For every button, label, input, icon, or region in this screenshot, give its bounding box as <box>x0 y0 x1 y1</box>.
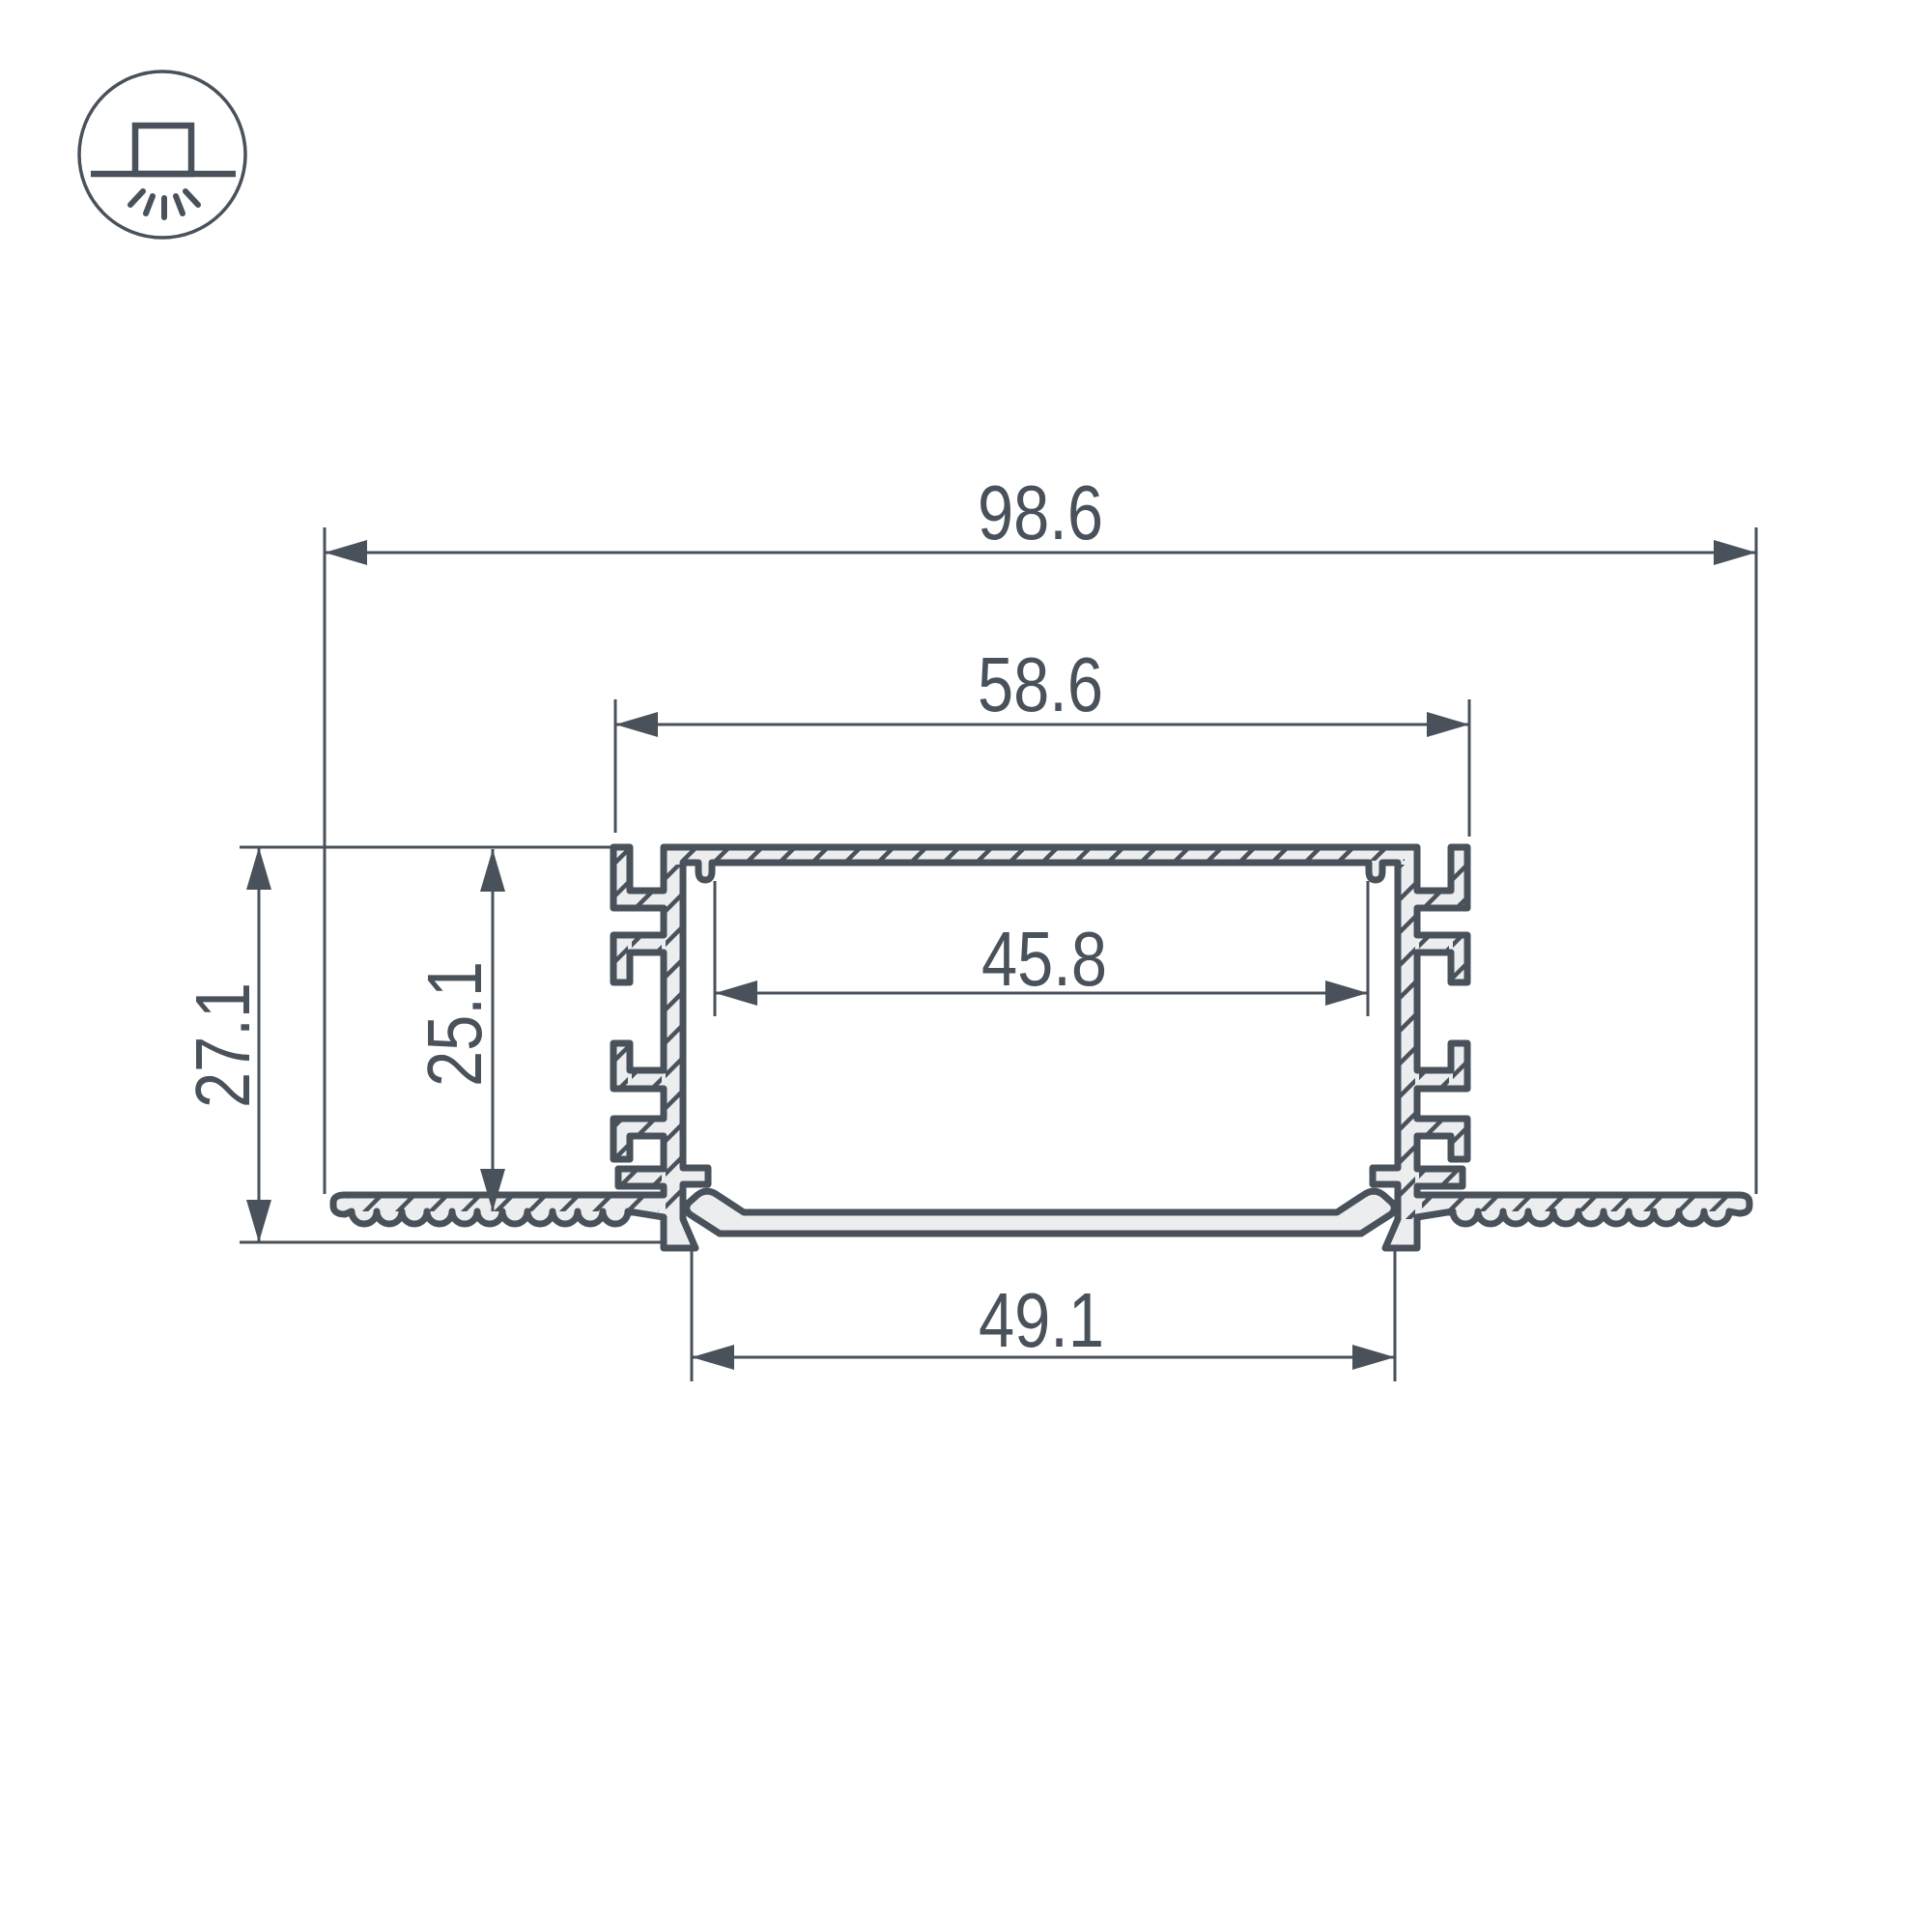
arrow-right-icon <box>1427 712 1469 737</box>
arrow-up-icon <box>246 847 271 890</box>
arrow-left-icon <box>615 712 658 737</box>
arrow-left-icon <box>325 540 367 565</box>
profile-body <box>333 847 1749 1248</box>
dim-label-cover-width: 49.1 <box>979 1277 1104 1363</box>
dim-label-overall-width: 98.6 <box>978 469 1103 555</box>
arrow-down-icon <box>246 1200 271 1242</box>
section-hatching <box>348 849 1735 1219</box>
dim-label-recess-width: 58.6 <box>978 641 1103 727</box>
dim-label-window-width: 45.8 <box>981 916 1107 1002</box>
drawing-page: 98.6 58.6 45.8 49.1 27.1 25.1 <box>0 0 1932 1932</box>
icon-fixture-box <box>135 126 191 174</box>
recessed-light-icon <box>79 71 245 238</box>
dim-label-overall-height: 27.1 <box>180 982 266 1108</box>
dimension-inner-depth: 25.1 <box>412 849 505 1211</box>
diffuser-cover <box>687 1191 1395 1234</box>
arrow-left-icon <box>715 980 757 1006</box>
dimension-overall-height: 27.1 <box>180 847 271 1242</box>
arrow-right-icon <box>1325 980 1368 1006</box>
dimension-window-width: 45.8 <box>715 916 1368 1006</box>
dimension-cover-width: 49.1 <box>692 1277 1395 1370</box>
arrow-right-icon <box>1352 1345 1395 1370</box>
profile-technical-drawing: 98.6 58.6 45.8 49.1 27.1 25.1 <box>0 0 1932 1932</box>
dimension-overall-width: 98.6 <box>325 469 1756 565</box>
arrow-up-icon <box>480 849 505 892</box>
dim-label-inner-depth: 25.1 <box>412 961 497 1087</box>
arrow-right-icon <box>1714 540 1756 565</box>
profile-cross-section <box>333 847 1749 1248</box>
icon-light-rays <box>130 191 198 217</box>
arrow-left-icon <box>692 1345 734 1370</box>
dimension-recess-width: 58.6 <box>615 641 1469 737</box>
